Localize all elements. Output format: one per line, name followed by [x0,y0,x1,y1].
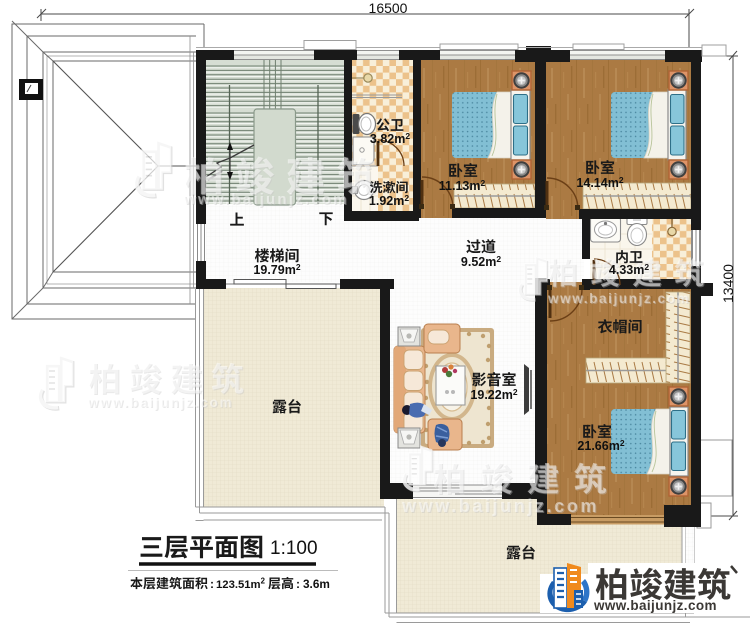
svg-text:www.baijunjz.com: www.baijunjz.com [183,191,349,208]
svg-text:16500: 16500 [369,0,408,16]
svg-text:19.22m2: 19.22m2 [470,387,517,402]
svg-text::: : [210,577,214,591]
svg-text::: : [296,577,300,591]
svg-text:123.51m2: 123.51m2 [216,577,266,592]
svg-text:3.6m: 3.6m [303,577,330,591]
svg-text:14.14m2: 14.14m2 [576,175,623,190]
svg-text:3.82m2: 3.82m2 [370,131,410,146]
svg-text:19.79m2: 19.79m2 [253,262,300,277]
svg-text:1.92m2: 1.92m2 [369,193,409,208]
svg-text:1:100: 1:100 [270,538,318,559]
svg-text:www.baijunjz.com: www.baijunjz.com [547,291,690,306]
svg-text:www.baijunjz.com: www.baijunjz.com [593,598,717,613]
svg-text:21.66m2: 21.66m2 [577,438,624,453]
svg-text:www.baijunjz.com: www.baijunjz.com [401,496,599,516]
svg-text:13400: 13400 [720,264,736,303]
svg-text:11.13m2: 11.13m2 [439,178,486,193]
svg-text:4.33m2: 4.33m2 [609,262,649,277]
svg-text:9.52m2: 9.52m2 [461,254,501,269]
svg-text:www.baijunjz.com: www.baijunjz.com [87,395,233,410]
